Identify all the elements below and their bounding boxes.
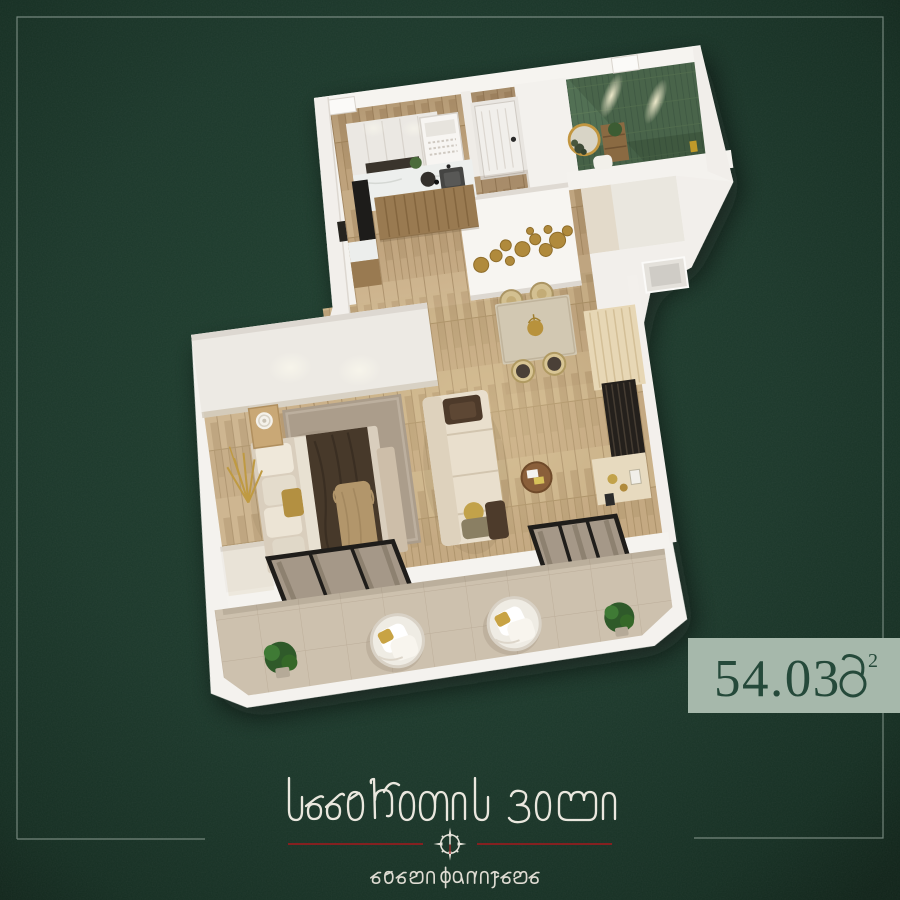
svg-text:54.03: 54.03	[714, 650, 841, 708]
svg-text:2: 2	[868, 650, 878, 672]
